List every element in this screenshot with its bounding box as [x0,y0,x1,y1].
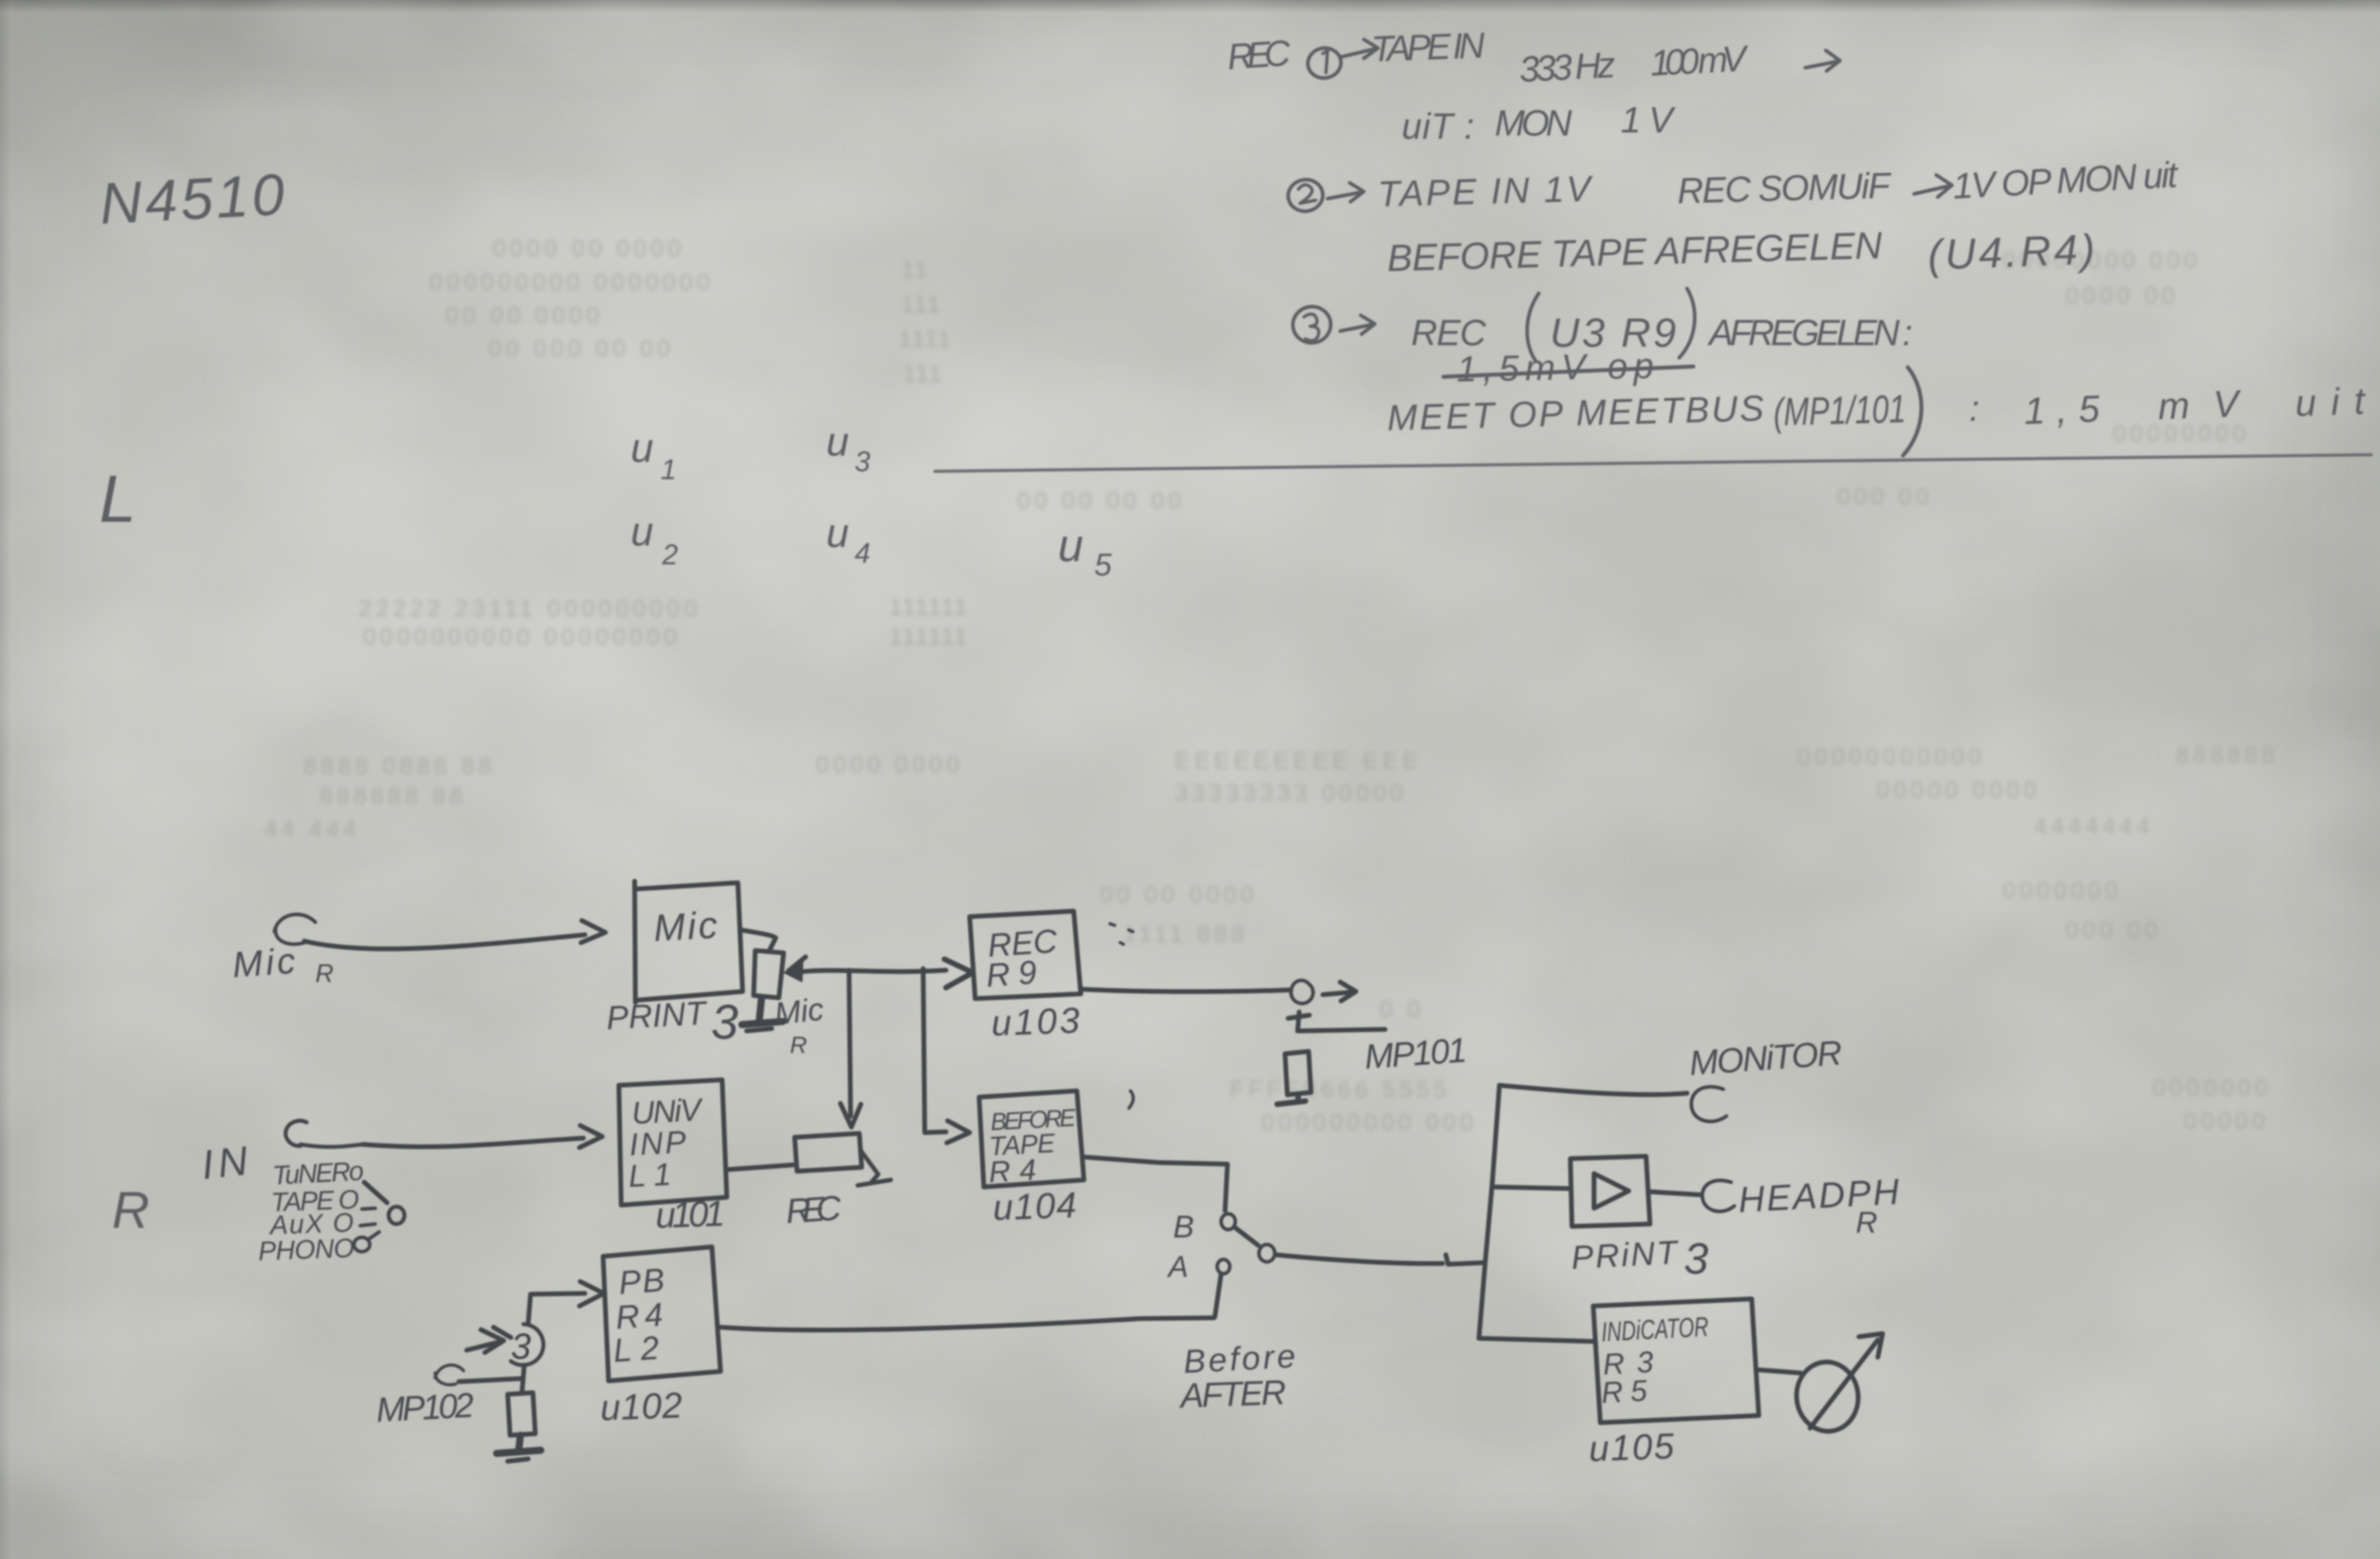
svg-text:REC SOMUiF: REC SOMUiF [1677,165,1893,211]
svg-text:4444444: 4444444 [2034,813,2154,839]
svg-text:INP: INP [628,1125,687,1163]
svg-text:11: 11 [901,257,929,283]
svg-text:Mic: Mic [773,992,825,1032]
svg-text:PRINT: PRINT [605,994,710,1036]
svg-text:MP101: MP101 [1363,1031,1468,1077]
svg-text:u105: u105 [1589,1425,1675,1469]
svg-text:1V OP MON uit: 1V OP MON uit [1952,154,2181,207]
svg-text:33333333 00000: 33333333 00000 [1175,780,1407,806]
svg-text:00 00 00 00: 00 00 00 00 [1017,488,1185,514]
svg-text:00000 0000: 00000 0000 [1876,777,2041,803]
svg-text:3: 3 [855,445,870,478]
svg-text:TAPE IN: TAPE IN [1371,24,1489,69]
svg-text:000 00: 000 00 [1837,484,1933,510]
svg-text:00000: 00000 [2184,1108,2269,1134]
svg-text:MON: MON [1495,102,1573,143]
svg-text:MP102: MP102 [375,1386,475,1430]
svg-text:00000000000: 00000000000 [1797,744,1986,770]
svg-text:uit: uit [2295,381,2367,425]
svg-text:u: u [631,509,654,555]
svg-text:111: 111 [901,292,942,318]
svg-text:1111 888: 1111 888 [1123,921,1248,947]
svg-text:PRiNT: PRiNT [1570,1233,1681,1276]
svg-text:TAPE IN 1V: TAPE IN 1V [1377,168,1595,214]
svg-text:000000000 000: 000000000 000 [1261,1110,1477,1136]
svg-text:3: 3 [1684,1233,1708,1283]
svg-text:REC: REC [784,1189,843,1231]
svg-text:5: 5 [1094,548,1112,582]
svg-text:1V: 1V [1621,99,1676,140]
svg-text:333 Hz: 333 Hz [1518,44,1617,90]
svg-text:PHONO: PHONO [258,1233,355,1267]
svg-text:N4510: N4510 [98,162,290,236]
svg-text:R: R [315,959,333,988]
svg-text:000 00: 000 00 [2065,917,2162,943]
svg-text:(MP1/101: (MP1/101 [1773,387,1906,434]
svg-text:4: 4 [855,537,870,569]
svg-text:AFTER: AFTER [1178,1373,1287,1416]
svg-text:111111: 111111 [889,594,969,620]
svg-text:00 00 0000: 00 00 0000 [1100,882,1257,908]
svg-text:0 0: 0 0 [1380,996,1425,1022]
svg-text:0000 00 0000: 0000 00 0000 [493,236,685,262]
svg-text:Mic: Mic [231,939,300,985]
svg-text:00 00 0000: 00 00 0000 [445,303,603,329]
svg-text:0000000: 0000000 [2152,1075,2272,1101]
svg-text:111111: 111111 [889,624,969,650]
svg-text:888888: 888888 [2176,742,2278,768]
svg-text:000000000 0000000: 000000000 0000000 [430,270,713,296]
svg-text:3: 3 [711,995,738,1050]
svg-text:MEET OP MEETBUS: MEET OP MEETBUS [1387,387,1765,438]
svg-text:BEFORE TAPE AFREGELEN: BEFORE TAPE AFREGELEN [1387,225,1883,280]
svg-text:u101: u101 [655,1193,726,1236]
svg-text:u: u [631,426,654,471]
svg-text:(U4.R4): (U4.R4) [1927,226,2095,279]
svg-text:L1: L1 [628,1157,672,1194]
svg-text:MONiTOR: MONiTOR [1688,1034,1843,1083]
svg-text:B: B [1173,1210,1194,1245]
svg-text:0000 00: 0000 00 [2065,283,2178,309]
svg-text:u: u [1058,520,1083,571]
svg-text:0000000: 0000000 [2002,878,2122,904]
svg-text:INDiCATOR: INDiCATOR [1600,1312,1709,1348]
svg-text:u: u [826,511,849,556]
svg-text:EEEEEEEEE EEE: EEEEEEEEE EEE [1175,748,1421,774]
svg-text:L: L [99,462,136,536]
svg-text:u102: u102 [600,1384,683,1428]
svg-text:u: u [826,419,849,465]
svg-text:100 mV: 100 mV [1649,37,1751,84]
svg-text:00 000 00 00: 00 000 00 00 [489,336,674,362]
svg-text::: : [1969,388,1980,429]
svg-text:IN: IN [199,1138,255,1189]
svg-text:22222 23111 000000000: 22222 23111 000000000 [359,596,701,622]
svg-text:0000 0000: 0000 0000 [816,752,963,778]
svg-text:R: R [790,1033,807,1059]
svg-text:8888 0888 88: 8888 0888 88 [304,753,496,779]
svg-text:R: R [112,1181,150,1239]
svg-text:1111: 1111 [899,326,952,352]
svg-text:3: 3 [511,1326,531,1367]
svg-text:888888 88: 888888 88 [319,783,467,809]
svg-text:Mic: Mic [653,905,721,950]
svg-text:44 444: 44 444 [264,817,360,843]
svg-text:2: 2 [661,538,678,571]
svg-text:1: 1 [661,453,676,486]
svg-text:R: R [1856,1207,1877,1240]
svg-text:FFFF8666 5555: FFFF8666 5555 [1230,1077,1451,1103]
svg-text:uiT :: uiT : [1402,106,1474,147]
svg-text:L2: L2 [612,1329,660,1369]
svg-text:u103: u103 [991,999,1081,1044]
svg-text:A: A [1167,1251,1188,1284]
svg-text:u104: u104 [993,1184,1078,1228]
svg-text:111: 111 [903,361,944,387]
svg-text:1,5: 1,5 [2024,389,2101,433]
svg-text:REC: REC [1411,312,1487,353]
svg-text:AFREGELEN :: AFREGELEN : [1707,312,1913,353]
svg-text:0000000000 00000000: 0000000000 00000000 [363,624,681,650]
svg-text:REC: REC [1226,32,1292,77]
